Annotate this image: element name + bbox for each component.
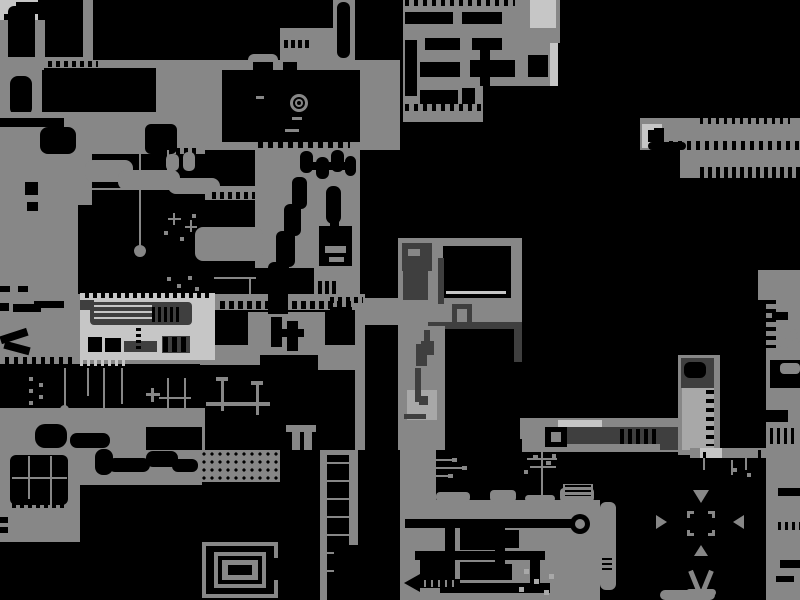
map-shape [5, 357, 77, 365]
map-shape [530, 466, 556, 468]
map-shape [565, 485, 591, 496]
map-shape [470, 60, 515, 77]
map-shape [524, 569, 529, 574]
map-shape [159, 397, 191, 399]
map-shape [172, 459, 198, 472]
map-shape [480, 43, 490, 86]
map-shape [700, 167, 800, 178]
map-shape [0, 303, 9, 311]
map-shape [700, 118, 790, 124]
map-shape [770, 428, 798, 444]
map-shape [374, 88, 400, 94]
map-shape [325, 246, 346, 253]
map-shape [519, 439, 522, 453]
map-shape [694, 532, 708, 540]
map-shape [163, 337, 189, 352]
map-shape [602, 558, 612, 570]
map-shape [18, 286, 28, 292]
map-shape [155, 60, 205, 115]
map-shape [527, 458, 557, 460]
map-shape [462, 12, 502, 24]
map-shape [192, 214, 196, 218]
map-shape [684, 518, 692, 530]
compass-arrow [694, 545, 708, 556]
map-shape [513, 441, 516, 453]
map-shape [684, 362, 706, 378]
map-shape [519, 587, 524, 592]
map-shape [533, 455, 538, 459]
map-shape [78, 205, 94, 295]
map-shape [136, 328, 141, 352]
map-shape [10, 76, 32, 116]
map-shape [195, 227, 263, 261]
map-shape [460, 528, 500, 550]
map-shape [88, 337, 102, 352]
map-shape [403, 256, 428, 300]
map-shape [146, 427, 202, 450]
map-shape [0, 118, 64, 127]
map-shape [747, 473, 751, 477]
map-shape [733, 468, 737, 472]
map-shape [780, 560, 800, 568]
map-shape [195, 287, 199, 291]
map-shape [183, 152, 195, 171]
map-shape [29, 377, 33, 381]
map-shape [575, 519, 585, 529]
map-shape [514, 326, 522, 362]
map-shape [490, 490, 516, 502]
map-shape [29, 389, 33, 393]
map-shape [40, 127, 76, 154]
map-shape [452, 458, 457, 462]
map-shape [766, 300, 776, 348]
map-shape [28, 249, 63, 251]
map-shape [12, 477, 67, 479]
map-shape [551, 432, 561, 442]
map-shape [286, 425, 316, 432]
map-shape [515, 88, 528, 104]
map-shape [446, 291, 506, 294]
map-shape [12, 499, 68, 508]
map-shape [10, 455, 68, 505]
map-shape [703, 458, 705, 470]
map-shape [85, 292, 213, 298]
map-shape [524, 470, 528, 474]
map-shape [694, 508, 708, 516]
map-shape [546, 461, 551, 465]
map-shape [525, 495, 555, 502]
map-shape [304, 432, 312, 450]
map-shape [436, 492, 470, 502]
map-shape [80, 359, 128, 366]
map-shape [462, 466, 467, 470]
map-shape [701, 570, 714, 591]
map-shape [425, 38, 460, 50]
map-shape [530, 0, 556, 28]
map-shape [292, 117, 302, 120]
map-shape [758, 450, 761, 458]
map-shape [105, 338, 121, 352]
map-shape [404, 414, 426, 419]
map-shape [766, 410, 788, 422]
map-shape [94, 305, 152, 323]
map-shape [534, 579, 539, 584]
map-shape [206, 402, 270, 406]
map-shape [330, 297, 363, 303]
droplet [134, 245, 146, 257]
map-shape [190, 220, 192, 232]
map-shape [279, 329, 304, 337]
map-shape [48, 61, 98, 67]
map-shape [167, 277, 171, 281]
map-shape [35, 424, 67, 448]
map-shape [415, 551, 545, 560]
map-shape [405, 40, 417, 96]
map-shape [419, 396, 428, 405]
map-shape [27, 202, 38, 211]
map-shape [420, 560, 450, 580]
map-shape [285, 129, 299, 132]
room [44, 68, 156, 112]
map-shape [462, 88, 475, 104]
map-shape [284, 40, 310, 48]
map-shape [712, 518, 720, 530]
map-shape [258, 138, 350, 148]
map-shape [64, 368, 66, 408]
map-shape [108, 458, 150, 472]
map-shape [528, 55, 548, 77]
map-shape [505, 530, 519, 548]
map-shape [34, 301, 64, 308]
map-shape [70, 433, 110, 448]
map-shape [405, 12, 453, 24]
map-shape [405, 104, 481, 111]
map-shape [0, 517, 8, 523]
map-shape [228, 565, 252, 575]
map-shape [330, 307, 352, 345]
map-shape [0, 527, 8, 533]
speckle-block [200, 450, 280, 482]
map-shape [745, 458, 747, 470]
compass-arrow [733, 515, 744, 529]
game-map [0, 0, 800, 600]
map-shape [164, 231, 168, 235]
map-shape [620, 429, 660, 444]
map-shape [292, 432, 300, 450]
map-shape [460, 562, 495, 580]
map-shape [167, 150, 169, 184]
map-shape [80, 188, 142, 190]
map-shape [492, 88, 505, 104]
map-shape [424, 580, 458, 587]
map-shape [600, 502, 616, 590]
map-shape [780, 363, 800, 374]
map-shape [448, 474, 453, 478]
map-shape [221, 381, 224, 411]
map-shape [420, 62, 460, 77]
map-shape [421, 341, 434, 355]
map-shape [121, 368, 123, 404]
map-shape [151, 388, 154, 402]
map-shape [363, 298, 403, 325]
map-shape [256, 385, 259, 415]
map-shape [268, 558, 278, 580]
map-shape [778, 522, 800, 530]
map-shape [253, 62, 273, 72]
map-shape [177, 284, 181, 288]
map-shape [420, 90, 458, 104]
map-shape [500, 564, 512, 580]
map-shape [25, 182, 38, 195]
map-shape [188, 276, 192, 280]
map-shape [29, 401, 33, 405]
map-shape [337, 2, 350, 58]
compass-arrow [693, 490, 709, 503]
map-shape [660, 141, 800, 150]
map-shape [550, 43, 558, 86]
map-shape [436, 475, 448, 477]
map-shape [436, 459, 452, 461]
map-shape [334, 545, 358, 600]
map-shape [87, 368, 89, 396]
map-shape [0, 286, 10, 292]
map-shape [544, 590, 549, 595]
map-shape [329, 257, 344, 262]
map-shape [256, 96, 264, 99]
map-shape [39, 383, 43, 387]
map-shape [457, 309, 467, 323]
map-shape [436, 467, 462, 469]
map-shape [83, 0, 93, 62]
compass-arrow [656, 515, 667, 529]
map-shape [772, 312, 788, 320]
map-shape [778, 488, 800, 496]
map-shape [283, 62, 297, 71]
map-shape [438, 258, 444, 304]
map-shape [304, 162, 352, 170]
map-shape [688, 570, 701, 591]
map-shape [297, 101, 301, 105]
map-shape [39, 395, 43, 399]
map-shape [706, 390, 714, 446]
map-shape [405, 519, 578, 528]
map-shape [405, 0, 515, 6]
map-shape [139, 154, 141, 252]
map-shape [369, 110, 400, 116]
map-shape [152, 307, 182, 322]
map-shape [549, 574, 554, 579]
map-shape [173, 213, 175, 225]
map-shape [660, 590, 715, 600]
map-shape [776, 576, 794, 582]
map-shape [180, 237, 184, 241]
map-shape [552, 454, 556, 458]
